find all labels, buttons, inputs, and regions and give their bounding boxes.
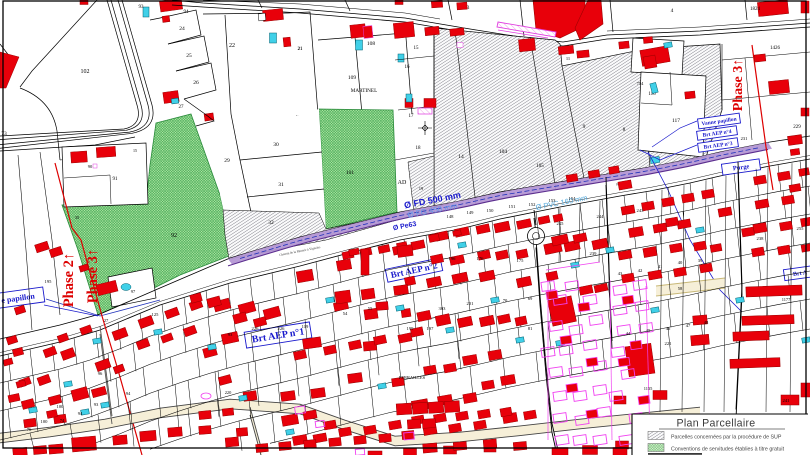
svg-text:1177: 1177 bbox=[782, 297, 791, 302]
svg-text:47: 47 bbox=[686, 323, 691, 328]
svg-text:221: 221 bbox=[665, 341, 673, 346]
svg-text:21: 21 bbox=[298, 46, 303, 51]
svg-text:201: 201 bbox=[467, 301, 475, 306]
svg-text:8: 8 bbox=[623, 127, 626, 133]
svg-text:54: 54 bbox=[343, 311, 348, 316]
svg-text:239: 239 bbox=[590, 251, 598, 256]
svg-text:58: 58 bbox=[678, 286, 683, 291]
svg-text:25: 25 bbox=[186, 53, 192, 59]
svg-text:241: 241 bbox=[783, 398, 791, 403]
svg-text:AD: AD bbox=[398, 180, 407, 186]
svg-text:108: 108 bbox=[367, 41, 376, 47]
svg-text:22: 22 bbox=[229, 43, 235, 49]
svg-text:148: 148 bbox=[447, 214, 455, 219]
svg-text:Parcelles concernées par la pr: Parcelles concernées par la procédure de… bbox=[671, 435, 782, 441]
svg-text:43: 43 bbox=[618, 271, 623, 276]
svg-text:45: 45 bbox=[646, 328, 651, 333]
svg-text:101: 101 bbox=[346, 170, 355, 176]
svg-text:231: 231 bbox=[741, 136, 748, 141]
svg-text:238: 238 bbox=[757, 236, 765, 241]
svg-text:Conventions de servitudes étab: Conventions de servitudes établies à tit… bbox=[671, 447, 785, 453]
svg-text:FERRAILLES: FERRAILLES bbox=[399, 375, 426, 380]
svg-text:29: 29 bbox=[224, 158, 230, 164]
svg-text:104: 104 bbox=[499, 149, 508, 155]
svg-text:74: 74 bbox=[60, 418, 65, 423]
svg-text:226: 226 bbox=[252, 326, 260, 331]
svg-text:199: 199 bbox=[407, 326, 415, 331]
svg-text:73: 73 bbox=[1, 131, 7, 137]
svg-text:244: 244 bbox=[597, 214, 605, 219]
svg-text:196: 196 bbox=[449, 256, 457, 261]
svg-text:MARTINEL: MARTINEL bbox=[351, 88, 378, 94]
svg-text:19: 19 bbox=[419, 186, 424, 191]
svg-text:125: 125 bbox=[152, 312, 160, 317]
svg-text:15: 15 bbox=[133, 148, 137, 153]
svg-text:30: 30 bbox=[273, 142, 279, 148]
svg-text:94: 94 bbox=[184, 10, 190, 15]
svg-text:90: 90 bbox=[88, 164, 93, 169]
svg-text:15: 15 bbox=[414, 46, 420, 51]
svg-text:245: 245 bbox=[557, 221, 565, 226]
svg-text:154: 154 bbox=[569, 196, 577, 201]
svg-text:97: 97 bbox=[131, 289, 136, 294]
svg-text:14: 14 bbox=[458, 154, 464, 160]
svg-text:9: 9 bbox=[583, 124, 586, 130]
svg-text:41: 41 bbox=[658, 264, 663, 269]
svg-text:27: 27 bbox=[104, 318, 109, 323]
svg-text:24: 24 bbox=[179, 26, 185, 32]
svg-text:1824: 1824 bbox=[750, 7, 761, 12]
svg-text:46: 46 bbox=[666, 326, 671, 331]
svg-text:Phase 2↑: Phase 2↑ bbox=[61, 253, 77, 307]
svg-text:229: 229 bbox=[793, 125, 801, 130]
svg-text:754: 754 bbox=[637, 81, 645, 86]
svg-text:55: 55 bbox=[368, 306, 373, 311]
svg-text:32: 32 bbox=[268, 220, 274, 226]
svg-text:17: 17 bbox=[409, 114, 415, 119]
svg-text:220: 220 bbox=[225, 390, 232, 395]
svg-text:303: 303 bbox=[439, 306, 447, 311]
svg-text:94: 94 bbox=[126, 391, 131, 396]
svg-text:92: 92 bbox=[171, 233, 177, 239]
svg-text:96: 96 bbox=[98, 371, 103, 376]
svg-text:70: 70 bbox=[503, 298, 508, 303]
svg-text:81: 81 bbox=[528, 326, 533, 331]
svg-text:175: 175 bbox=[517, 258, 525, 263]
svg-text:153: 153 bbox=[549, 198, 557, 203]
svg-text:1135: 1135 bbox=[644, 386, 653, 391]
svg-text:195: 195 bbox=[45, 279, 53, 284]
svg-text:105: 105 bbox=[536, 164, 544, 169]
svg-text:93: 93 bbox=[94, 402, 99, 407]
svg-text:119: 119 bbox=[302, 324, 309, 329]
svg-text:11: 11 bbox=[566, 56, 570, 61]
svg-text:39: 39 bbox=[698, 258, 703, 263]
svg-text:151: 151 bbox=[509, 204, 517, 209]
svg-text:Phase 3↑: Phase 3↑ bbox=[731, 59, 746, 112]
svg-text:226: 226 bbox=[278, 326, 286, 331]
svg-text:91: 91 bbox=[113, 177, 119, 182]
svg-text:93: 93 bbox=[139, 5, 145, 10]
svg-text:102: 102 bbox=[81, 69, 90, 75]
svg-text:94: 94 bbox=[78, 411, 83, 416]
svg-text:197: 197 bbox=[427, 326, 435, 331]
svg-text:150: 150 bbox=[487, 208, 495, 213]
svg-text:149: 149 bbox=[467, 210, 475, 215]
svg-text:176: 176 bbox=[477, 256, 485, 261]
svg-text:35: 35 bbox=[75, 215, 80, 220]
svg-text:27: 27 bbox=[179, 105, 185, 110]
svg-text:69: 69 bbox=[528, 296, 533, 301]
svg-text:44: 44 bbox=[626, 331, 631, 336]
svg-text:48: 48 bbox=[704, 320, 709, 325]
svg-text:42: 42 bbox=[638, 268, 643, 273]
svg-text:26: 26 bbox=[193, 80, 199, 86]
svg-text:1426: 1426 bbox=[770, 46, 781, 51]
svg-text:76: 76 bbox=[27, 427, 32, 432]
svg-text:255: 255 bbox=[797, 226, 805, 231]
svg-text:93: 93 bbox=[228, 332, 233, 337]
svg-text:109: 109 bbox=[348, 75, 357, 81]
svg-text:100: 100 bbox=[41, 419, 49, 424]
svg-text:100: 100 bbox=[57, 404, 65, 409]
svg-text:117: 117 bbox=[672, 118, 680, 124]
svg-text:31: 31 bbox=[278, 182, 284, 188]
svg-text:Phase 3↑: Phase 3↑ bbox=[85, 249, 101, 303]
svg-text:152: 152 bbox=[529, 202, 537, 207]
svg-text:40: 40 bbox=[678, 260, 683, 265]
svg-text:243: 243 bbox=[637, 208, 645, 213]
svg-text:4: 4 bbox=[671, 8, 674, 14]
svg-text:18: 18 bbox=[416, 146, 422, 151]
svg-text:Plan Parcellaire: Plan Parcellaire bbox=[677, 418, 756, 430]
svg-text:16: 16 bbox=[405, 65, 411, 70]
